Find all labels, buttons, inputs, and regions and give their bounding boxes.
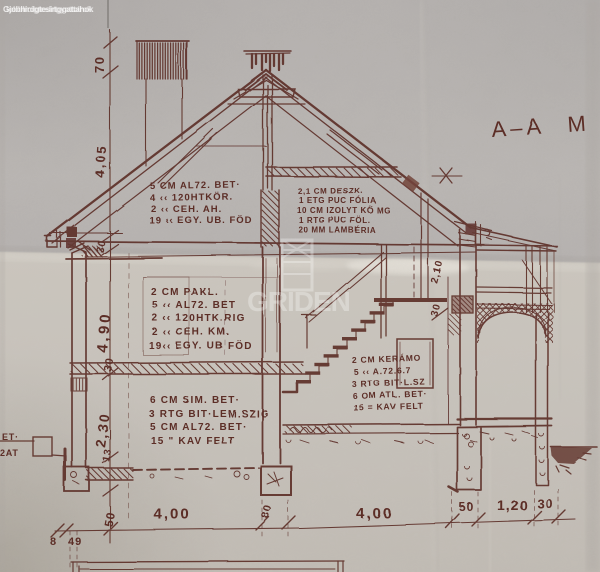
svg-text:50: 50: [101, 510, 117, 528]
svg-text:3 RTG BIT·LEM.SZIG: 3 RTG BIT·LEM.SZIG: [149, 409, 270, 420]
svg-text:19‹‹ EGY. UB FÖD: 19‹‹ EGY. UB FÖD: [149, 339, 253, 352]
svg-text:M: M: [567, 111, 587, 137]
svg-text:15 " KAV FELT: 15 " KAV FELT: [151, 436, 235, 447]
svg-text:20 MM LAMBÉRIA: 20 MM LAMBÉRIA: [299, 226, 376, 235]
svg-text:30: 30: [95, 239, 108, 254]
svg-text:5 CM AL72. BET·: 5 CM AL72. BET·: [150, 422, 248, 433]
svg-text:5 CM AL72. BET·: 5 CM AL72. BET·: [150, 179, 241, 192]
svg-text:13: 13: [101, 448, 114, 463]
svg-text:6 CM SIM. BET·: 6 CM SIM. BET·: [150, 395, 240, 406]
svg-text:4,00: 4,00: [154, 506, 191, 523]
svg-text:2 CM PAKL.: 2 CM PAKL.: [151, 287, 219, 298]
svg-text:8: 8: [50, 536, 57, 548]
svg-text:2 ‹‹ CEH. AH.: 2 ‹‹ CEH. AH.: [151, 204, 222, 215]
svg-text:A–A: A–A: [491, 113, 546, 142]
svg-text:70: 70: [92, 56, 107, 73]
svg-text:1,20: 1,20: [497, 497, 528, 513]
svg-text:4,90: 4,90: [94, 311, 115, 354]
svg-text:4,00: 4,00: [356, 505, 393, 522]
svg-text:tobblrcigteslrtgyattalrok: tobblrcigteslrtgyattalrok: [6, 4, 92, 14]
svg-text:2,1 CM DESZK.: 2,1 CM DESZK.: [298, 186, 363, 196]
svg-text:49: 49: [68, 536, 82, 548]
svg-text:4,05: 4,05: [92, 144, 109, 178]
svg-text:ET·: ET·: [2, 432, 19, 442]
svg-text:2 ‹‹ 120HTK.RIG: 2 ‹‹ 120HTK.RIG: [152, 313, 246, 324]
svg-text:1 ETG PUC FÓLIA: 1 ETG PUC FÓLIA: [299, 196, 376, 205]
svg-text:GRIDEN: GRIDEN: [247, 286, 350, 317]
svg-text:19 ‹‹ EGY. UB. FÖD: 19 ‹‹ EGY. UB. FÖD: [149, 215, 253, 226]
svg-text:10 CM IZOLYT KŐ MG: 10 CM IZOLYT KŐ MG: [297, 206, 391, 215]
svg-text:4 ‹‹ 120HTKÖR.: 4 ‹‹ 120HTKÖR.: [150, 192, 233, 204]
svg-text:50: 50: [459, 500, 474, 514]
svg-text:30: 30: [102, 356, 116, 372]
svg-text:2 ‹‹ CEH. KM.: 2 ‹‹ CEH. KM.: [152, 327, 230, 338]
svg-text:5 ‹‹ A.72.6.7: 5 ‹‹ A.72.6.7: [354, 365, 412, 377]
svg-text:2AT: 2AT: [0, 448, 19, 458]
svg-text:1 RTG PUC FÖL.: 1 RTG PUC FÖL.: [299, 216, 371, 225]
svg-text:5 ‹‹ AL72. BET: 5 ‹‹ AL72. BET: [152, 300, 236, 311]
svg-text:30: 30: [537, 496, 553, 511]
